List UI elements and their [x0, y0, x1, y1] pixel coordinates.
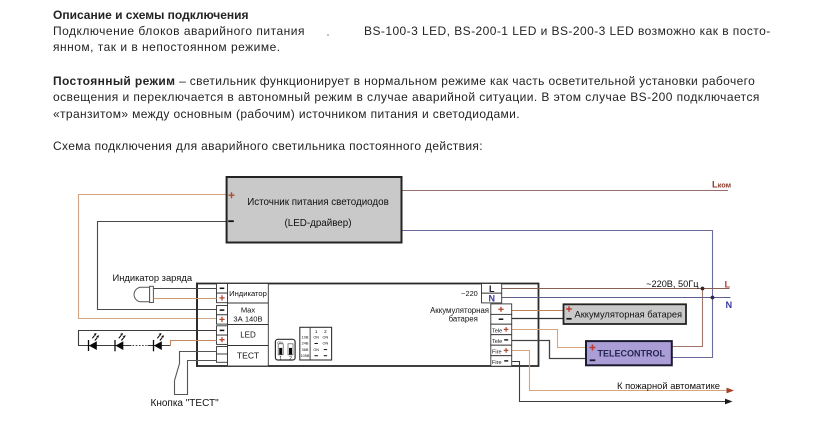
svg-text:2: 2	[289, 356, 292, 362]
svg-text:(LED-драйвер): (LED-драйвер)	[285, 218, 352, 229]
svg-text:1: 1	[315, 329, 318, 334]
svg-text:L: L	[725, 280, 731, 290]
svg-text:ON: ON	[323, 342, 329, 346]
svg-text:Tele: Tele	[492, 329, 502, 335]
svg-text:Fire: Fire	[492, 360, 502, 366]
svg-text:батарея: батарея	[449, 315, 478, 324]
svg-text:36В: 36В	[302, 348, 309, 352]
svg-text:2: 2	[324, 329, 327, 334]
svg-text:L: L	[489, 284, 495, 294]
svg-text:Источник питания светодиодов: Источник питания светодиодов	[247, 197, 389, 208]
svg-text:10В: 10В	[302, 336, 309, 340]
svg-text:Max: Max	[241, 305, 256, 314]
svg-text:N: N	[726, 300, 733, 310]
svg-text:TELECONTROL: TELECONTROL	[598, 349, 666, 359]
svg-text:ON: ON	[313, 336, 319, 340]
svg-text:105В: 105В	[301, 354, 310, 358]
svg-text:Индикатор: Индикатор	[229, 289, 267, 298]
svg-text:Индикатор заряда: Индикатор заряда	[113, 272, 193, 283]
svg-text:N: N	[489, 294, 496, 304]
svg-text:24В: 24В	[302, 342, 309, 346]
svg-text:ON: ON	[323, 336, 329, 340]
svg-text:ON: ON	[313, 348, 319, 352]
svg-text:ТЕСТ: ТЕСТ	[237, 351, 260, 361]
svg-text:К пожарной автоматике: К пожарной автоматике	[617, 380, 720, 391]
svg-text:Кнопка "ТЕСТ": Кнопка "ТЕСТ"	[151, 398, 220, 409]
svg-text:~220В, 50Гц: ~220В, 50Гц	[646, 279, 699, 289]
svg-text:1: 1	[279, 356, 282, 362]
svg-text:Tele: Tele	[492, 339, 502, 345]
svg-text:Fire: Fire	[492, 350, 502, 356]
svg-text:Аккумуляторная: Аккумуляторная	[430, 306, 489, 315]
svg-text:LED: LED	[240, 331, 256, 340]
svg-text:Lком: Lком	[712, 180, 731, 190]
svg-text:~220: ~220	[461, 289, 478, 298]
svg-text:Аккумуляторная батарея: Аккумуляторная батарея	[575, 310, 683, 320]
svg-text:3А 140В: 3А 140В	[233, 314, 262, 323]
